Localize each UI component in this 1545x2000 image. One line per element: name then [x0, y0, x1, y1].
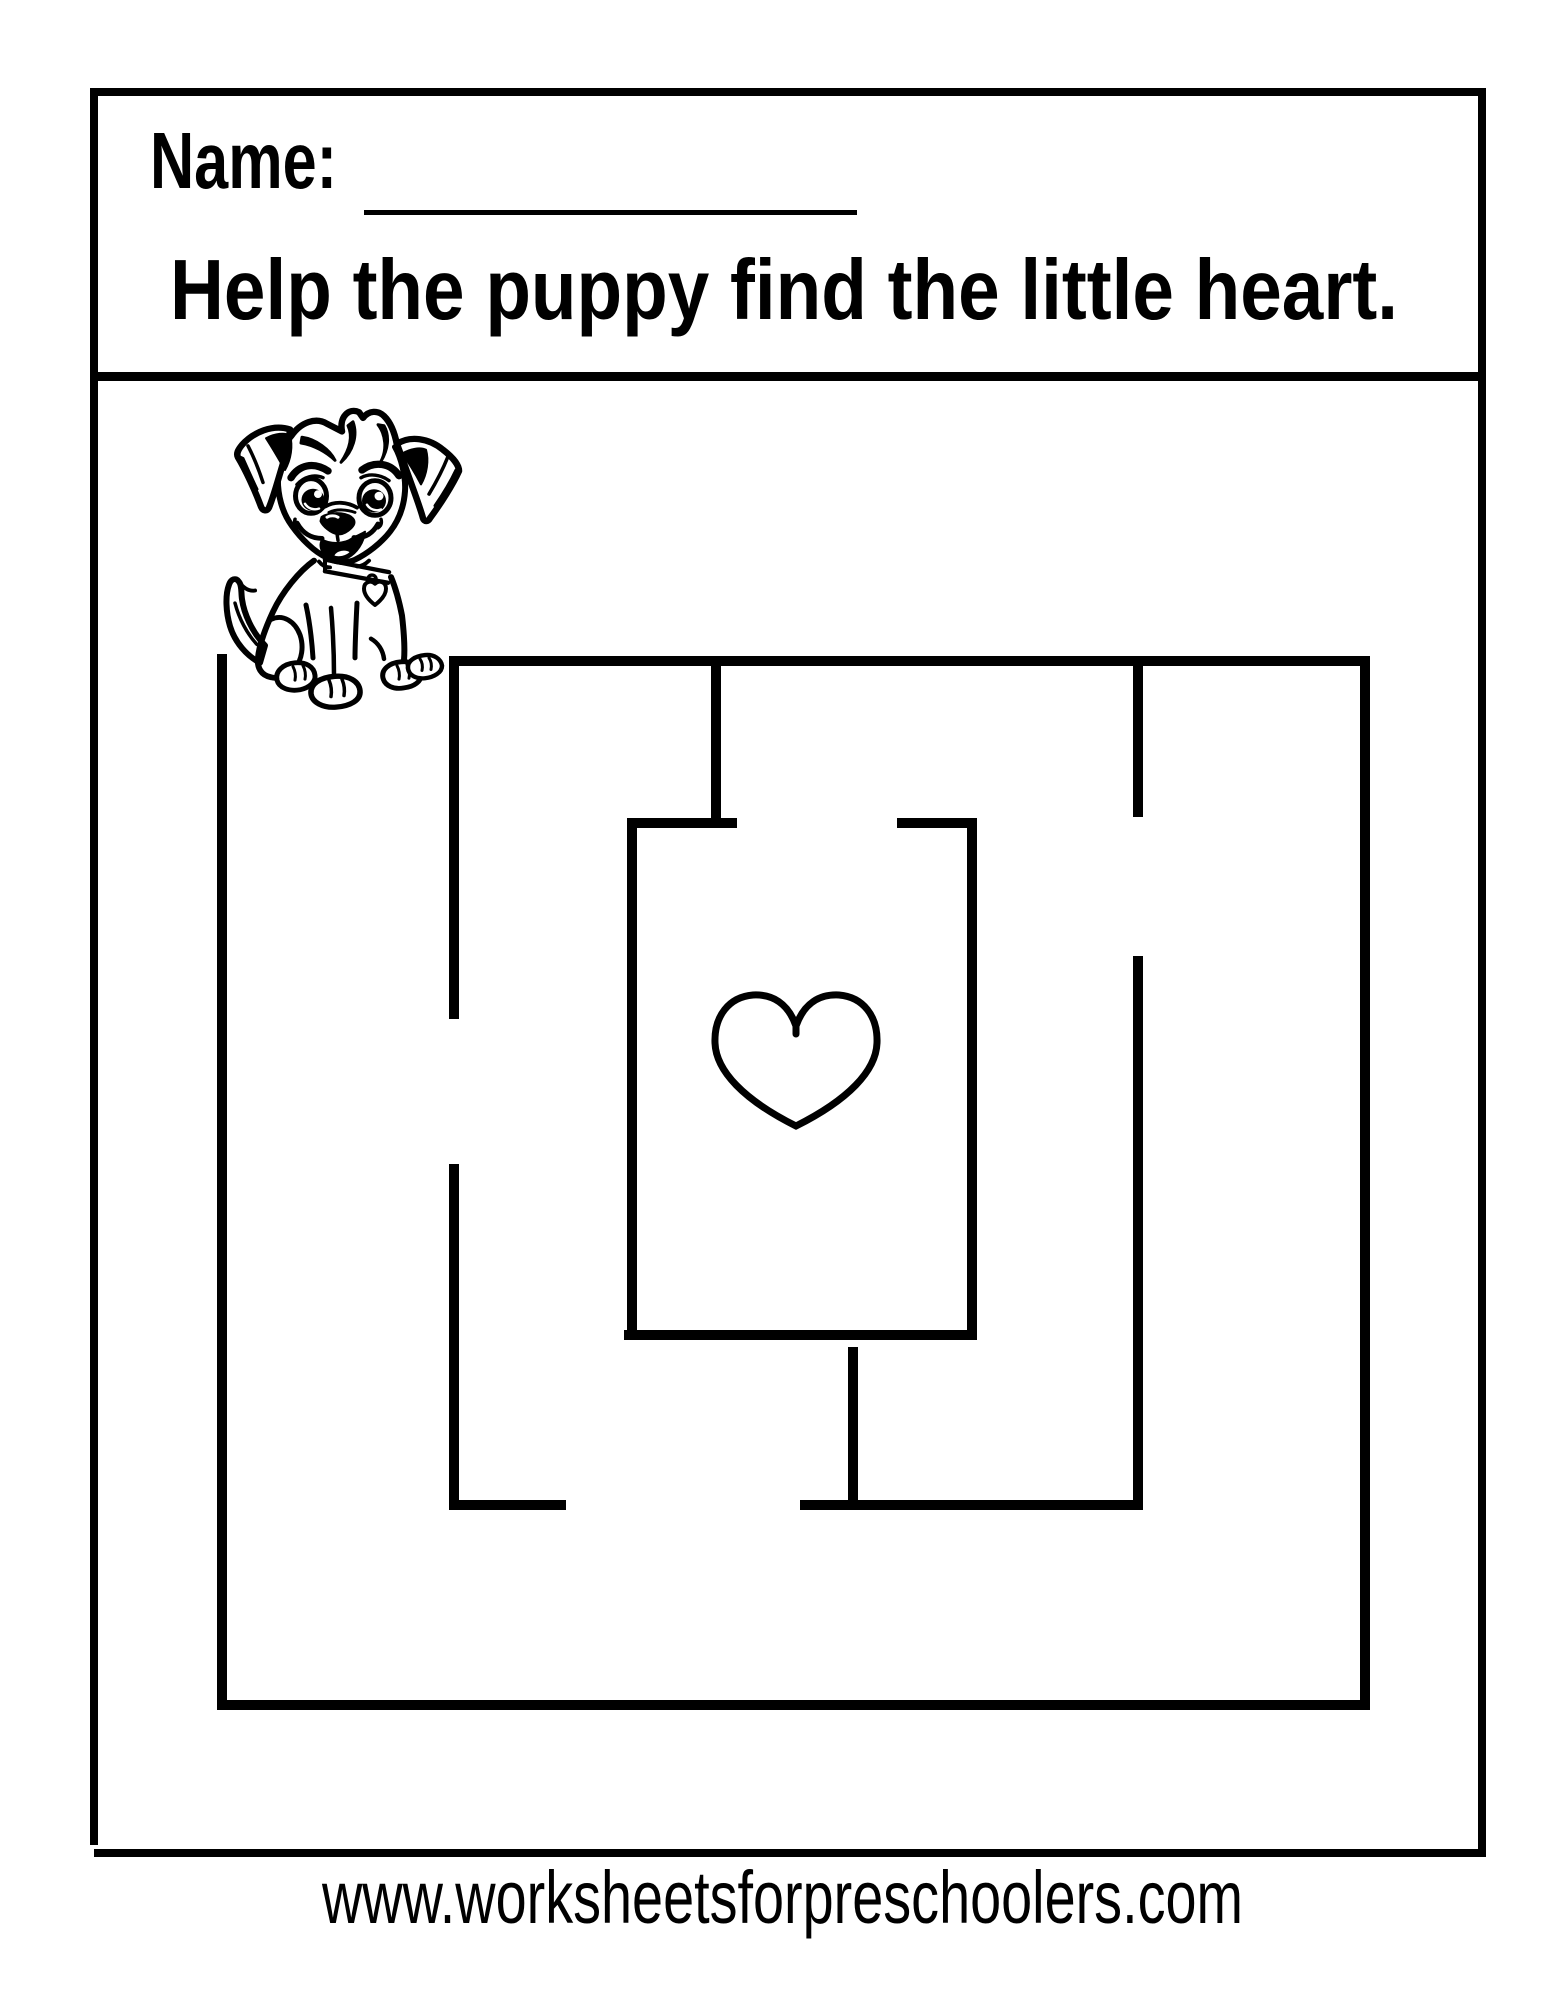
svg-text:Name:: Name: [150, 116, 337, 205]
svg-text:www.worksheetsforpreschoolers.: www.worksheetsforpreschoolers.com [321, 1856, 1243, 1939]
svg-text:Help the puppy find the little: Help the puppy find the little heart. [170, 243, 1398, 338]
